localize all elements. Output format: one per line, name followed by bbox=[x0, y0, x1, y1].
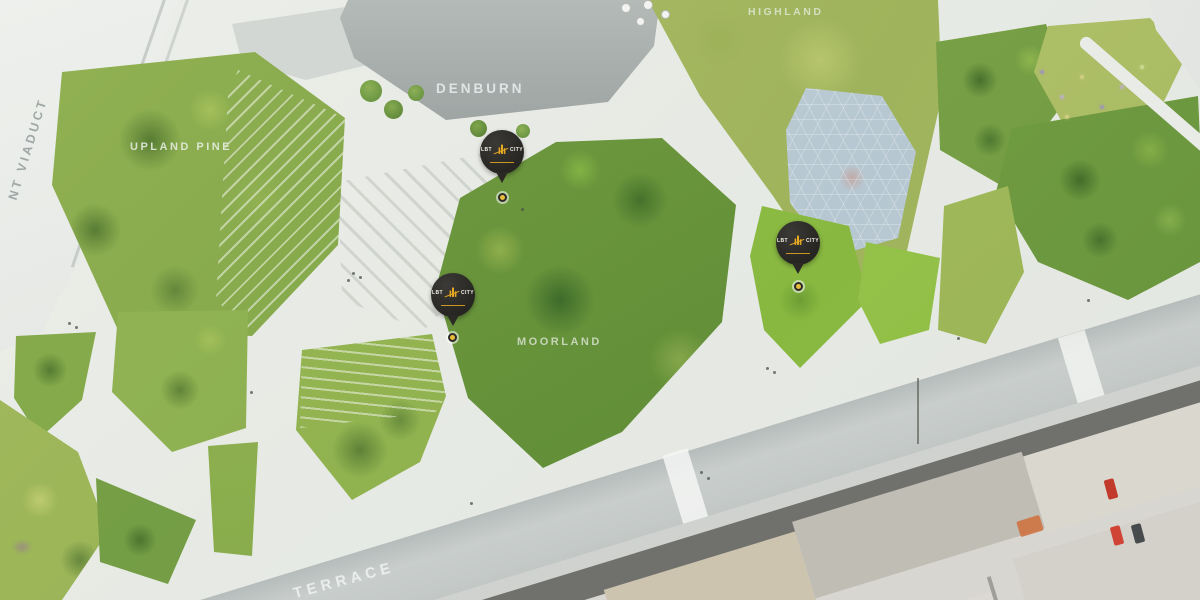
location-dot bbox=[794, 282, 803, 291]
pin-logo-tagline-line bbox=[490, 162, 514, 163]
pedestrian bbox=[347, 279, 350, 282]
pedestrian bbox=[766, 367, 769, 370]
pedestrian bbox=[957, 337, 960, 340]
wildflowers bbox=[1120, 85, 1124, 89]
cafe-table bbox=[643, 0, 653, 10]
area-label-upland-pine: UPLAND PINE bbox=[130, 141, 232, 153]
pin-logo-text-right: CITY bbox=[806, 239, 819, 244]
location-dot bbox=[448, 333, 457, 342]
cafe-table bbox=[621, 3, 631, 13]
wildflowers bbox=[1040, 70, 1044, 74]
area-label-moorland: MOORLAND bbox=[517, 336, 602, 348]
city-skyline-icon bbox=[789, 233, 805, 251]
city-skyline-icon bbox=[444, 285, 460, 303]
location-dot bbox=[498, 193, 507, 202]
path bbox=[1077, 34, 1200, 159]
viaduct-road-line bbox=[71, 0, 168, 268]
pedestrian bbox=[359, 276, 362, 279]
area-label-highland: HIGHLAND bbox=[748, 6, 823, 18]
tree bbox=[360, 80, 382, 102]
area-label-denburn: DENBURN bbox=[436, 81, 525, 96]
pedestrian bbox=[707, 477, 710, 480]
pier-line bbox=[917, 378, 919, 444]
pedestrian bbox=[470, 502, 473, 505]
wildflowers bbox=[1060, 95, 1064, 99]
city-skyline-icon bbox=[493, 142, 509, 160]
pin-balloon: LBT CITY bbox=[480, 130, 524, 174]
map-pin-terraced-lawn[interactable]: LBT CITY bbox=[431, 273, 475, 329]
pin-logo-text-left: LBT bbox=[777, 239, 788, 244]
pedestrian bbox=[1087, 299, 1090, 302]
pedestrian bbox=[250, 391, 253, 394]
pin-balloon: LBT CITY bbox=[431, 273, 475, 317]
wildflowers bbox=[1065, 115, 1069, 119]
pedestrian bbox=[773, 371, 776, 374]
pedestrian bbox=[521, 208, 524, 211]
pin-logo-tagline-line bbox=[786, 253, 810, 254]
pedestrian bbox=[352, 272, 355, 275]
street-label-viaduct: NT VIADUCT bbox=[6, 96, 50, 201]
masterplan-map[interactable]: UPLAND PINE DENBURN HIGHLAND MOORLAND NT… bbox=[0, 0, 1200, 600]
pin-tail bbox=[447, 315, 459, 332]
wildflowers bbox=[1140, 65, 1144, 69]
pin-logo-text-right: CITY bbox=[510, 148, 523, 153]
pedestrian bbox=[75, 326, 78, 329]
wildflowers bbox=[1100, 105, 1104, 109]
cafe-table bbox=[661, 10, 670, 19]
map-pin-denburn-square[interactable]: LBT CITY bbox=[480, 130, 524, 186]
pin-balloon: LBT CITY bbox=[776, 221, 820, 265]
pin-logo-text-left: LBT bbox=[481, 148, 492, 153]
pin-tail bbox=[496, 172, 508, 189]
tree bbox=[408, 85, 424, 101]
map-pin-highland-lawn[interactable]: LBT CITY bbox=[776, 221, 820, 277]
cafe-table bbox=[636, 17, 645, 26]
wildflowers bbox=[1080, 75, 1084, 79]
pin-logo-text-right: CITY bbox=[461, 291, 474, 296]
purple-shrubs bbox=[12, 540, 32, 554]
tree bbox=[384, 100, 403, 119]
pin-tail bbox=[792, 263, 804, 280]
pin-logo-tagline-line bbox=[441, 305, 465, 306]
pin-logo-text-left: LBT bbox=[432, 291, 443, 296]
pedestrian bbox=[700, 471, 703, 474]
aerial-photo-buildings bbox=[114, 259, 1200, 600]
pedestrian bbox=[68, 322, 71, 325]
